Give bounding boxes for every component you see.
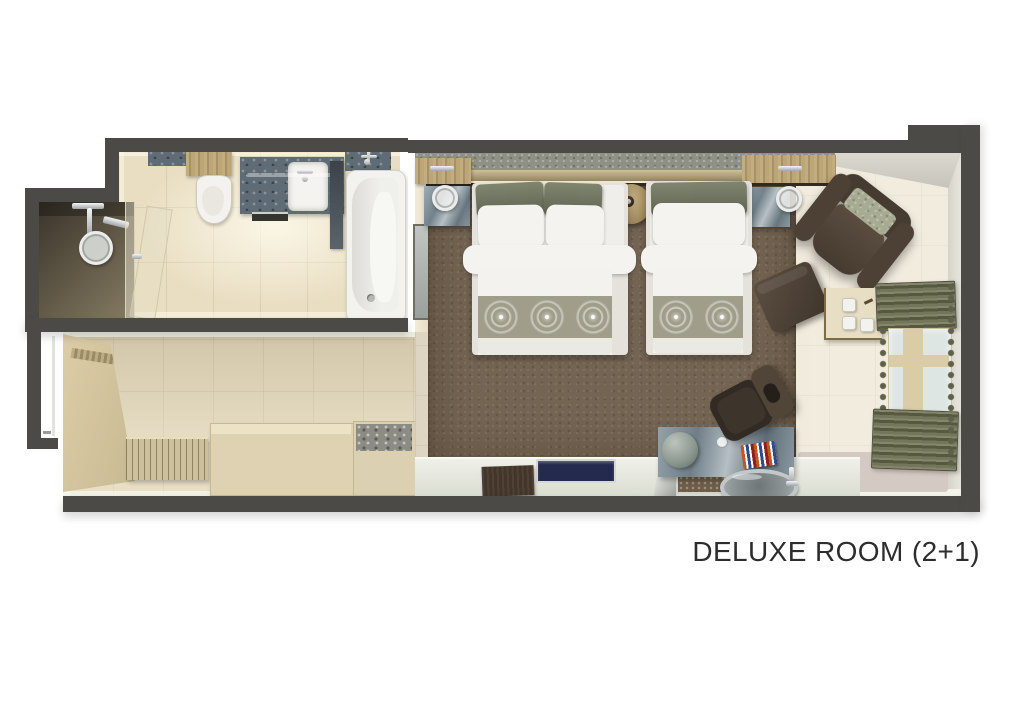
hall-wall-face-top: [63, 332, 415, 337]
tub-faucet-dot: [364, 159, 370, 165]
bed-foot: [653, 338, 743, 353]
wall-lamp-right: [776, 186, 802, 212]
window-mullion-vertical: [903, 329, 923, 413]
desk-faucet-base: [786, 481, 798, 486]
wall-bathroom-bottom: [25, 318, 408, 332]
wall-shower-left: [25, 188, 39, 332]
curtain-edge-right: [944, 282, 958, 468]
wall-tile-accent: [148, 150, 190, 166]
decor-sphere: [662, 432, 698, 468]
wall-lamp-left: [432, 185, 458, 211]
bed-runner: [478, 296, 612, 338]
wall-shower-top: [25, 188, 119, 202]
entry-door-recess: [41, 332, 58, 438]
glass-partition-vanity: [330, 161, 343, 249]
wall-right: [961, 125, 980, 512]
wall-bathroom-top: [105, 138, 408, 152]
minibar-open-top: [356, 424, 412, 451]
double-bed: [472, 183, 628, 355]
pillow: [478, 204, 545, 248]
cup: [860, 318, 874, 332]
single-bed: [646, 181, 752, 355]
entry-door: [52, 336, 55, 436]
wall-bedroom-top: [408, 140, 915, 153]
minibar-cabinet: [353, 421, 417, 496]
wall-bottom: [63, 496, 980, 512]
bed-runner: [653, 296, 743, 338]
wall-door-stub: [27, 438, 58, 449]
nightstand-left-top: [415, 158, 471, 184]
cup: [842, 316, 856, 330]
window: [888, 328, 952, 416]
desk-tray: [536, 459, 616, 483]
bowl-highlight: [732, 474, 762, 480]
towel-rail: [252, 212, 288, 221]
coffee-table: [824, 288, 882, 340]
luggage-bench-top: [211, 424, 351, 434]
floor-plan: DELUXE ROOM (2+1): [0, 0, 1024, 724]
wall-lamp-right-bar: [778, 166, 802, 171]
vanity-glint: [246, 173, 338, 177]
radiator-bench: [126, 437, 208, 480]
shower-head: [79, 231, 113, 265]
toilet-shelf: [186, 152, 232, 176]
plan-caption: DELUXE ROOM (2+1): [690, 536, 980, 570]
pillow: [653, 203, 745, 246]
desk-mat: [481, 465, 534, 497]
pillow: [546, 204, 605, 248]
door-handle: [43, 431, 51, 434]
luggage-bench: [210, 423, 354, 496]
window-mullion-horizontal: [889, 355, 949, 367]
shower-door-hinge: [132, 254, 142, 259]
wall-lamp-left-bar: [430, 166, 454, 171]
wall-hall-left: [27, 330, 41, 442]
bed-foot: [478, 338, 612, 355]
bathtub-basin-highlight: [370, 192, 396, 302]
cup: [842, 298, 856, 312]
tub-drain: [367, 294, 375, 302]
